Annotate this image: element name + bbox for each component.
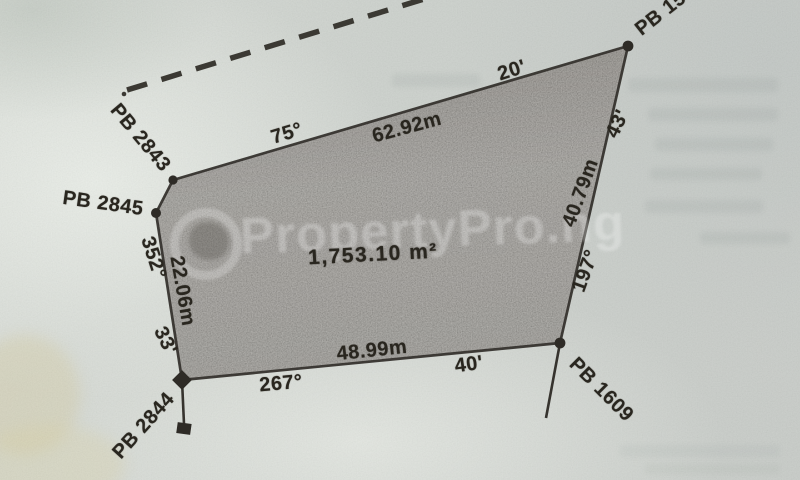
dashed-line-end-dot xyxy=(122,92,127,97)
bearing-degrees-bottom: 267° xyxy=(258,371,303,398)
bearing-minutes-bottom: 40' xyxy=(453,352,484,379)
beacon-block-pb2844 xyxy=(176,422,191,435)
beacon-marker-nw xyxy=(168,175,177,184)
beacon-marker-se xyxy=(555,338,566,349)
beacon-marker-west xyxy=(151,208,161,218)
propertypro-logo-glyph xyxy=(189,222,229,260)
beacon-marker-ne xyxy=(623,41,634,52)
survey-plan-scan: PropertyPro.ng PB 2843 PB 2845 PB 2844 P… xyxy=(0,0,800,480)
